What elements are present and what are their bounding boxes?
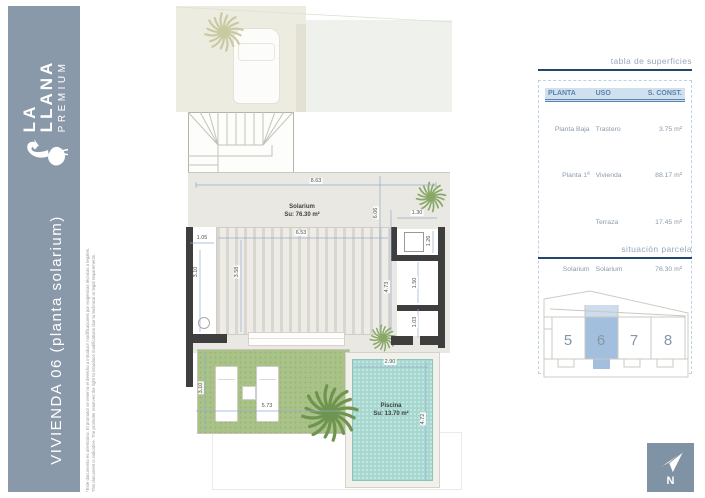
brand-logo: LA LLANA PREMIUM [12, 21, 76, 211]
plot-number-5: 5 [564, 332, 572, 349]
wall [397, 305, 438, 311]
surface-cell: Vivienda [593, 152, 635, 199]
sun-lounger [256, 366, 279, 422]
surfaces-panel-title: tabla de superficies [538, 56, 692, 66]
dimension-label: 1.30 [411, 210, 424, 216]
side-table [242, 386, 256, 400]
north-label: N [667, 475, 675, 487]
chimney-shaft [404, 232, 424, 252]
brand-text: LA LLANA PREMIUM [21, 60, 68, 133]
room-name: Piscina [373, 403, 408, 411]
surface-row: Terraza17.45 m² [545, 199, 685, 246]
title-rule [538, 257, 692, 259]
surface-cell: 17.45 m² [635, 199, 685, 246]
surface-row: Planta BajaTrastero3.75 m² [545, 101, 685, 153]
surface-cell: Terraza [593, 199, 635, 246]
dimension-label: 6.53 [295, 230, 308, 236]
north-compass: N [647, 443, 694, 492]
room-area: Su: 13.70 m² [373, 411, 408, 419]
north-arrow-icon [656, 448, 686, 474]
parcel-panel-title: situación parcela [538, 244, 692, 254]
dimension-label: 4.72 [420, 413, 426, 426]
dimension-label: 2.90 [384, 359, 397, 365]
dimension-label: 3.10 [198, 382, 204, 395]
dimension-label: 5.73 [261, 403, 274, 409]
sun-lounger [215, 366, 238, 422]
dimension-label: 1.03 [412, 316, 418, 329]
surface-cell: Trastero [593, 101, 635, 153]
surface-row: Planta 1ªVivienda88.17 m² [545, 152, 685, 199]
palm-tree-icon [298, 381, 362, 450]
brand-line1: LA [21, 60, 38, 133]
brand-line2: LLANA [38, 60, 55, 133]
surface-cell: 88.17 m² [635, 152, 685, 199]
col-header-planta: PLANTA [545, 88, 593, 101]
plot-number-7: 7 [630, 332, 638, 349]
dimension-label: 1.26 [426, 235, 432, 248]
dimension-label: 3.10 [193, 266, 199, 279]
room-label-piscina: Piscina Su: 13.70 m² [373, 403, 408, 419]
room-name: Solarium [284, 204, 319, 212]
plot-number-6: 6 [597, 332, 605, 349]
parcel-panel: situación parcela 5 6 7 8 [538, 244, 692, 390]
disclaimer-text: *Este documento es orientativo. El promo… [85, 200, 98, 492]
dimension-label: 6.06 [373, 207, 379, 220]
drain-circle [198, 317, 210, 329]
room-label-solarium: Solarium Su: 76.30 m² [284, 204, 319, 220]
room-area: Su: 76.30 m² [284, 212, 319, 220]
sheet-title: VIVIENDA 06 (planta solarium) [48, 210, 68, 470]
surface-cell: Planta Baja [545, 101, 593, 153]
dimension-label: 3.58 [234, 266, 240, 279]
disclaimer-en: This document is indicative. The promote… [91, 200, 97, 492]
plan-sheet: LA LLANA PREMIUM VIVIENDA 06 (planta sol… [0, 0, 705, 498]
sidebar: LA LLANA PREMIUM VIVIENDA 06 (planta sol… [8, 6, 80, 492]
surface-cell: Planta 1ª [545, 152, 593, 199]
plot-6-porch [593, 359, 610, 369]
site-plan: 5 6 7 8 [538, 285, 690, 385]
wall [438, 227, 445, 348]
bench-outline [248, 332, 345, 346]
brand-line3: PREMIUM [58, 60, 68, 133]
pergola-slats [216, 227, 390, 335]
surface-cell: 3.75 m² [635, 101, 685, 153]
wall [186, 227, 193, 387]
title-rule [538, 69, 692, 71]
col-header-sconst: S. CONST. [635, 88, 685, 101]
dimension-label: 4.73 [384, 281, 390, 294]
palm-tree-icon [202, 10, 246, 59]
dimension-label: 1.05 [196, 235, 209, 241]
plot-number-8: 8 [664, 332, 672, 349]
wall [391, 255, 438, 261]
flamingo-icon [20, 138, 68, 172]
surface-cell [545, 199, 593, 246]
dimension-label: 1.50 [412, 277, 418, 290]
surfaces-table-header-row: PLANTA USO S. CONST. [545, 88, 685, 101]
faint-plan-area2 [306, 20, 452, 112]
faint-wall [296, 24, 306, 112]
wall [391, 336, 413, 345]
wall [193, 334, 227, 343]
col-header-uso: USO [593, 88, 635, 101]
wall [420, 336, 438, 345]
dimension-label: 8.63 [310, 178, 323, 184]
